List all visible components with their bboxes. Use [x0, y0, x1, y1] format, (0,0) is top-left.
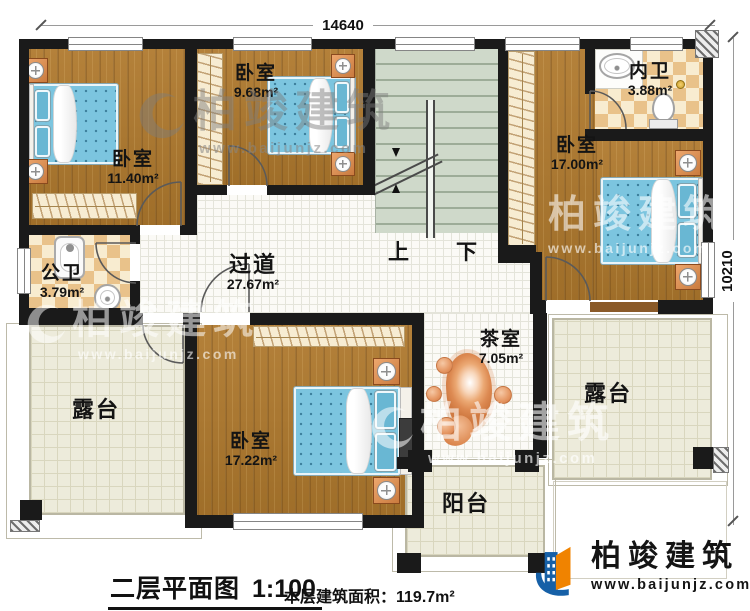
- wall-terrace-left-north-a: [19, 313, 143, 325]
- room-label-balcony: 阳台: [442, 492, 490, 516]
- wall-bedroom-tm-south-a: [197, 185, 227, 195]
- room-area: 27.67m²: [227, 277, 279, 292]
- nightstand: [373, 358, 400, 385]
- wall-tea-room-east: [533, 313, 547, 458]
- wall-bedroom-tl-south-b: [180, 225, 197, 235]
- window: [233, 513, 363, 530]
- sliding-door-sill: [590, 302, 658, 312]
- pillar: [408, 450, 432, 472]
- bed-pillow: [375, 433, 396, 471]
- room-label-tea-room: 茶室 7.05m²: [479, 330, 523, 366]
- hatched-pier: [695, 30, 719, 58]
- bed-pillow: [35, 126, 50, 157]
- bed-blanket: [53, 85, 77, 163]
- stair-direction-arrow-up: [392, 184, 400, 193]
- room-label-bedroom-right: 卧室 17.00m²: [551, 136, 603, 172]
- bed-headboard: [29, 84, 34, 164]
- wall-bedroom-tm-south-b: [267, 185, 375, 195]
- bed-blanket: [651, 179, 677, 263]
- room-label-terrace-right: 露台: [584, 382, 632, 406]
- wall-bedroom-bottom-west: [185, 313, 197, 515]
- plan-title-text: 二层平面图: [110, 575, 240, 603]
- wall-bedroom-bottom-east: [412, 313, 424, 515]
- hallway-floor-a: [140, 235, 197, 313]
- pillar: [20, 500, 42, 520]
- dimension-height: 10210: [716, 240, 739, 302]
- room-label-public-bath: 公卫 3.79m²: [40, 264, 84, 300]
- room-name: 露台: [584, 382, 632, 406]
- room-name: 卧室: [234, 64, 278, 85]
- door-inner-bath: [590, 91, 626, 129]
- bed-pillow: [335, 117, 349, 148]
- room-label-terrace-left: 露台: [72, 398, 120, 422]
- nightstand: [675, 150, 701, 176]
- nightstand: [331, 54, 355, 78]
- door-bedroom-tm: [229, 146, 267, 186]
- hatched-pier: [10, 520, 40, 532]
- wall-bedroom-bottom-south-b: [363, 515, 424, 528]
- door-public-bath: [96, 243, 136, 283]
- dimension-line-top: [40, 25, 715, 26]
- wardrobe-bedroom-bottom: [253, 326, 405, 347]
- window: [701, 242, 715, 298]
- wardrobe-bedroom-tm: [197, 53, 223, 185]
- shower-knob: [676, 80, 685, 89]
- room-name: 过道: [227, 253, 279, 277]
- stair-label-down: 下: [456, 236, 477, 266]
- floor-area-value: 119.7m²: [396, 589, 455, 606]
- room-area: 11.40m²: [107, 171, 158, 186]
- door-terrace-left: [143, 325, 183, 363]
- pillar: [693, 447, 713, 469]
- bed-blanket: [346, 388, 372, 474]
- door-bedroom-right: [546, 257, 590, 301]
- room-label-hallway: 过道 27.67m²: [227, 253, 279, 292]
- wardrobe-bedroom-right: [508, 51, 535, 247]
- wardrobe-bedroom-tl: [32, 193, 137, 219]
- tea-stool: [437, 417, 456, 436]
- bed-blanket: [309, 78, 333, 153]
- bed-pillow: [678, 184, 696, 218]
- room-name: 卧室: [551, 136, 603, 157]
- room-area: 7.05m²: [479, 351, 523, 366]
- company-logo-text: 柏竣建筑 www.baijunjz.com: [591, 540, 750, 593]
- company-website: www.baijunjz.com: [591, 577, 750, 593]
- wall-inner-bath-west: [585, 49, 595, 94]
- bed-pillow: [35, 90, 50, 121]
- hallway-floor-d: [498, 263, 533, 313]
- company-logo: 柏竣建筑 www.baijunjz.com: [527, 540, 750, 602]
- room-area: 9.68m²: [234, 85, 278, 100]
- stair-label-up: 上: [388, 236, 409, 266]
- tea-stool: [494, 386, 512, 404]
- room-label-bedroom-tl: 卧室 11.40m²: [107, 150, 158, 186]
- room-label-inner-bath: 内卫 3.88m²: [628, 62, 672, 98]
- room-label-bedroom-bottom: 卧室 17.22m²: [225, 432, 277, 468]
- wall-bedroom-tl-east: [185, 39, 197, 235]
- stairwell-floor: [375, 49, 498, 233]
- stair-direction-arrow-down: [392, 148, 400, 157]
- room-name: 露台: [72, 398, 120, 422]
- room-area: 17.00m²: [551, 157, 603, 172]
- wall-bedroom-bottom-north-b: [250, 313, 424, 325]
- pillar: [515, 450, 539, 472]
- wall-bedroom-bottom-south-a: [185, 515, 233, 528]
- sink-public-bath: [94, 284, 121, 311]
- bed-bedroom-right: [601, 178, 703, 264]
- bed-headboard: [350, 77, 355, 154]
- room-area: 3.79m²: [40, 285, 84, 300]
- room-name: 卧室: [225, 432, 277, 453]
- door-bedroom-tl: [137, 182, 181, 226]
- window: [17, 248, 31, 294]
- hatched-pier: [713, 447, 729, 473]
- wall-bedroom-right-south-a: [530, 300, 546, 314]
- company-logo-icon: [527, 540, 583, 602]
- wall-bedroom-right-south-b: [658, 300, 713, 314]
- floor-plan-canvas: 卧室 11.40m² 卧室 9.68m² 卧室 17.00m² 卧室 17.22…: [0, 0, 750, 611]
- nightstand: [373, 477, 400, 504]
- window: [68, 37, 143, 51]
- window: [630, 37, 683, 51]
- room-label-bedroom-tm: 卧室 9.68m²: [234, 64, 278, 100]
- window: [505, 37, 580, 51]
- wall-public-bath-east-b: [130, 281, 140, 308]
- room-area: 3.88m²: [628, 83, 672, 98]
- room-name: 茶室: [479, 330, 523, 351]
- nightstand: [331, 152, 355, 176]
- tea-stool: [436, 357, 453, 374]
- window: [233, 37, 312, 51]
- window: [395, 37, 475, 51]
- room-name: 内卫: [628, 62, 672, 83]
- room-area: 17.22m²: [225, 453, 277, 468]
- pillar: [397, 553, 421, 573]
- wall-bedroom-tl-south-a: [19, 225, 140, 235]
- dimension-width: 14640: [313, 17, 373, 34]
- bed-bedroom-bottom: [294, 387, 412, 475]
- floor-area-label: 本层建筑面积：: [284, 589, 396, 606]
- floor-area-note: 本层建筑面积：119.7m²: [284, 583, 455, 607]
- wall-bedroom-tm-east: [363, 39, 375, 195]
- nightstand: [675, 264, 701, 290]
- bed-pillow: [678, 223, 696, 257]
- toilet-tank: [649, 119, 678, 129]
- room-name: 阳台: [442, 492, 490, 516]
- room-name: 公卫: [40, 264, 84, 285]
- bed-pillow: [375, 391, 396, 429]
- wall-stairwell-east: [498, 39, 508, 245]
- bed-bedroom-tm: [268, 77, 355, 154]
- room-name: 卧室: [107, 150, 158, 171]
- company-name: 柏竣建筑: [591, 540, 750, 575]
- bed-pillow: [335, 82, 349, 113]
- bed-bedroom-tl: [29, 84, 118, 164]
- tea-stool: [426, 386, 442, 402]
